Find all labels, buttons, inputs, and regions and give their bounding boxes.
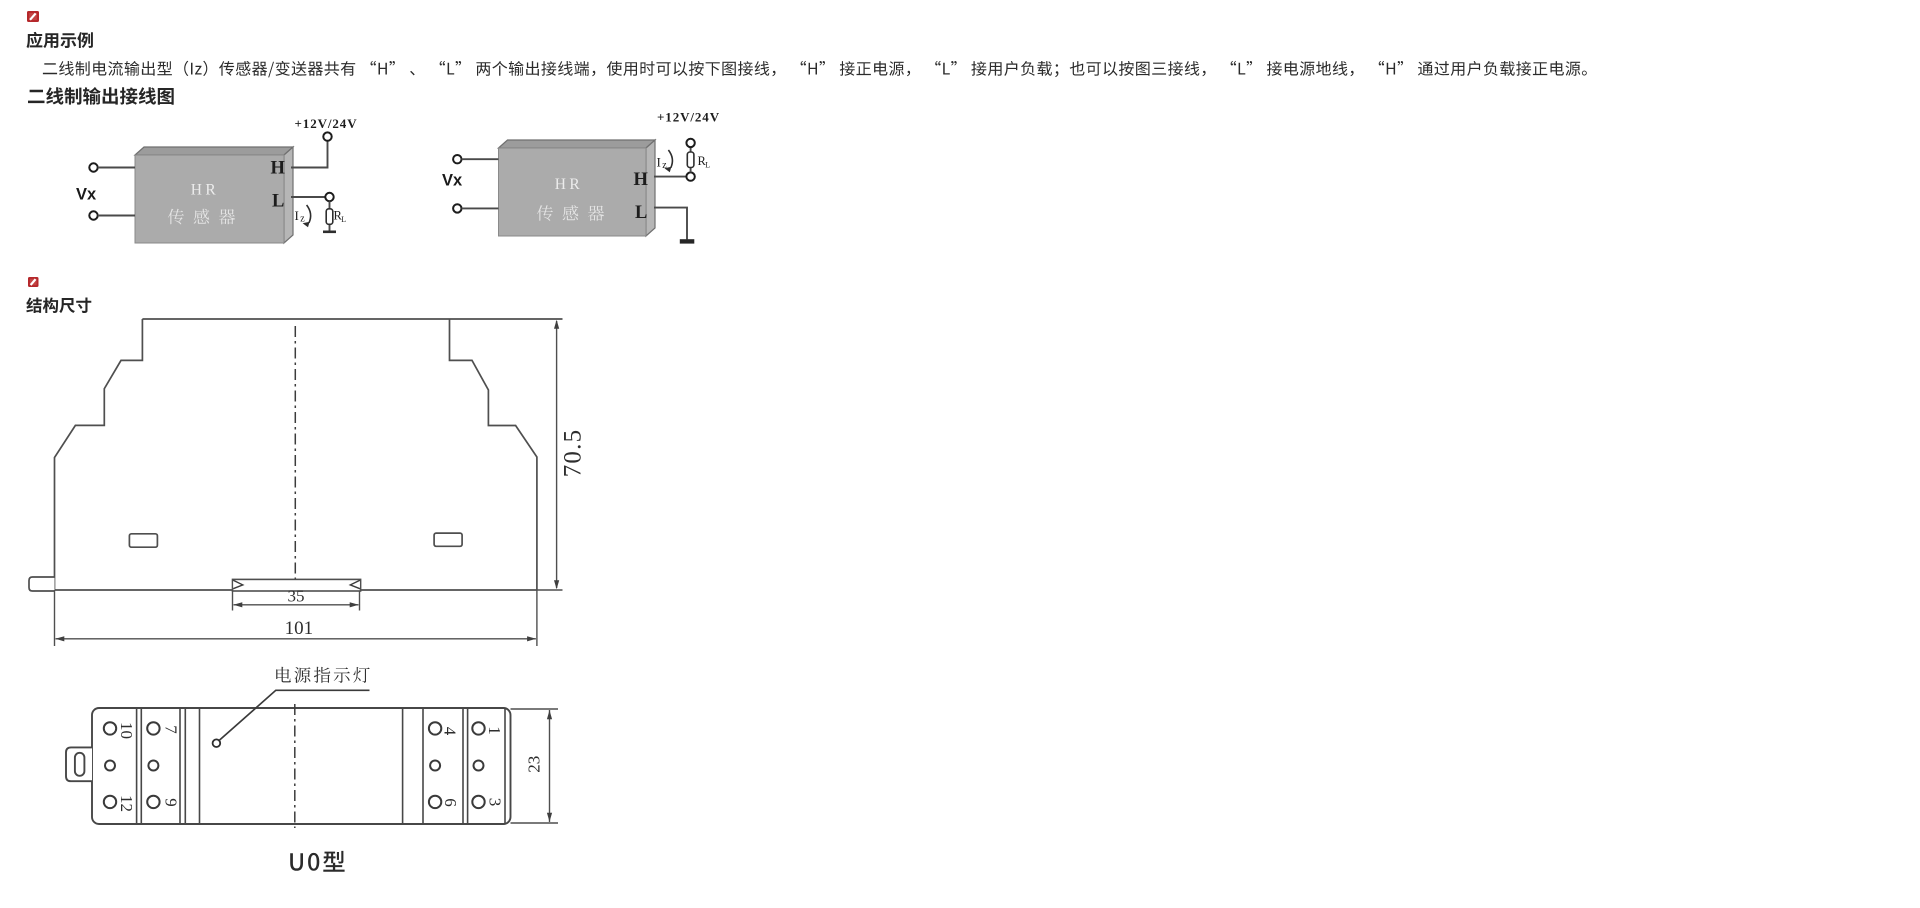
svg-text:H: H [634,170,649,190]
svg-text:H: H [271,159,286,179]
svg-text:9: 9 [161,798,180,807]
svg-text:4: 4 [441,727,460,736]
svg-text:HR: HR [555,176,584,193]
svg-text:70.5: 70.5 [560,429,587,478]
svg-text:3: 3 [486,798,505,807]
svg-text:23: 23 [525,756,544,773]
svg-text:L: L [705,161,710,170]
svg-text:L: L [272,192,284,212]
svg-text:7: 7 [161,725,180,734]
svg-text:12: 12 [117,795,136,812]
svg-text:10: 10 [117,722,136,739]
svg-text:I: I [295,208,299,223]
svg-text:1: 1 [485,726,504,735]
svg-text:L: L [341,215,346,224]
svg-text:I: I [657,155,661,170]
svg-text:Vx: Vx [76,186,97,204]
svg-text:+12V/24V: +12V/24V [295,116,358,131]
svg-text:+12V/24V: +12V/24V [657,110,720,125]
svg-text:L: L [635,203,647,223]
svg-text:101: 101 [285,618,314,639]
svg-text:HR: HR [191,182,220,199]
svg-text:35: 35 [288,587,305,606]
svg-text:6: 6 [441,798,460,807]
svg-text:Vx: Vx [442,172,463,190]
